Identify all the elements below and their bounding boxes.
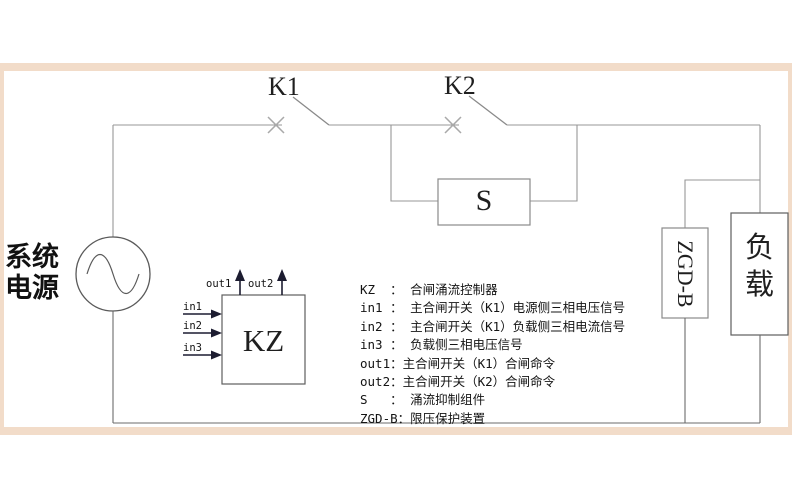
legend-line-zgdb: ZGD-B：限压保护装置: [360, 410, 625, 428]
load-char1: 负: [731, 230, 788, 267]
load-char2: 载: [731, 267, 788, 304]
system-power-line2: 电源: [5, 273, 59, 303]
legend-line-s: S ： 涌流抑制组件: [360, 391, 625, 409]
suppressor-label: S: [438, 184, 530, 218]
voltage-limiter-label: ZGD-B: [672, 234, 698, 314]
k1-switch-label: K1: [268, 72, 300, 102]
legend-line-kz: KZ ： 合闸涌流控制器: [360, 281, 625, 299]
legend: KZ ： 合闸涌流控制器 in1 ： 主合闸开关（K1）电源侧三相电压信号 in…: [360, 281, 625, 428]
controller-label: KZ: [222, 323, 305, 359]
out2-port-label: out2: [248, 278, 273, 290]
legend-line-in1: in1 ： 主合闸开关（K1）电源侧三相电压信号: [360, 299, 625, 317]
load-label: 负载: [731, 230, 788, 304]
in1-port-label: in1: [183, 301, 202, 313]
system-power-line1: 系统: [5, 242, 59, 272]
out1-port-label: out1: [206, 278, 231, 290]
circuit-figure: 系统电源 K1 K2 S KZ ZGD-B 负载 in1 in2 in3 out…: [0, 0, 800, 500]
in3-port-label: in3: [183, 342, 202, 354]
legend-line-out1: out1：主合闸开关（K1）合闸命令: [360, 355, 625, 373]
k2-switch-label: K2: [444, 71, 476, 101]
legend-line-in2: in2 ： 主合闸开关（K1）负载侧三相电流信号: [360, 318, 625, 336]
legend-line-in3: in3 ： 负载侧三相电压信号: [360, 336, 625, 354]
system-power-label: 系统电源: [5, 242, 59, 304]
in2-port-label: in2: [183, 320, 202, 332]
legend-line-out2: out2：主合闸开关（K2）合闸命令: [360, 373, 625, 391]
